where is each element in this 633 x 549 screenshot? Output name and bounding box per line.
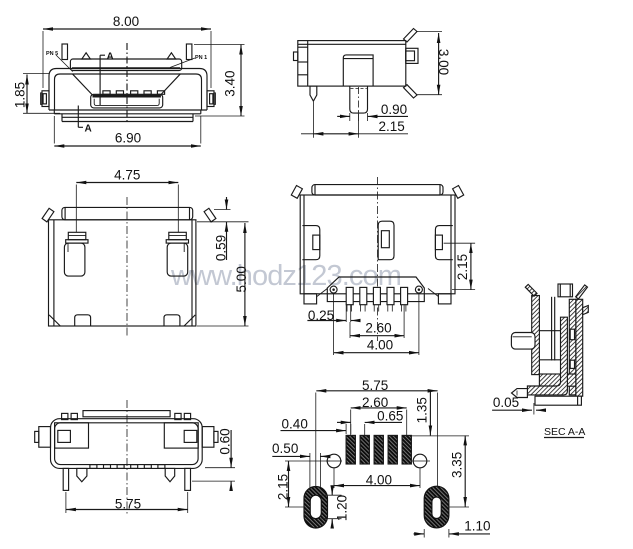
svg-text:4.00: 4.00 [366,472,392,487]
svg-text:PN 5: PN 5 [46,51,58,57]
svg-text:0.65: 0.65 [377,408,403,423]
svg-text:5.75: 5.75 [115,496,141,511]
svg-text:0.90: 0.90 [381,102,407,117]
svg-text:3.00: 3.00 [436,49,451,75]
svg-text:2.60: 2.60 [365,321,391,336]
svg-text:A: A [85,124,92,135]
svg-text:1.85: 1.85 [12,82,27,108]
svg-text:1.10: 1.10 [464,518,490,533]
svg-text:2.15: 2.15 [275,474,290,500]
svg-text:3.35: 3.35 [450,452,465,478]
svg-text:A: A [107,52,114,63]
svg-text:0.05: 0.05 [493,395,519,410]
svg-text:PN 1: PN 1 [195,55,207,61]
svg-text:3.40: 3.40 [222,70,237,96]
svg-text:5.00: 5.00 [234,266,249,292]
svg-text:8.00: 8.00 [113,14,139,29]
svg-text:6.90: 6.90 [115,131,141,146]
svg-text:0.40: 0.40 [282,417,308,432]
svg-text:4.75: 4.75 [114,168,140,183]
svg-text:1.35: 1.35 [414,397,429,423]
svg-text:4.00: 4.00 [367,338,393,353]
svg-text:5.75: 5.75 [362,378,388,393]
svg-text:0.60: 0.60 [217,428,232,454]
svg-text:1.20: 1.20 [334,495,349,521]
svg-text:2.15: 2.15 [378,119,404,134]
svg-text:0.50: 0.50 [272,441,298,456]
svg-text:0.59: 0.59 [213,235,228,261]
svg-text:0.25: 0.25 [308,308,334,323]
svg-text:2.15: 2.15 [455,254,470,280]
svg-text:SEC A-A: SEC A-A [544,426,585,438]
